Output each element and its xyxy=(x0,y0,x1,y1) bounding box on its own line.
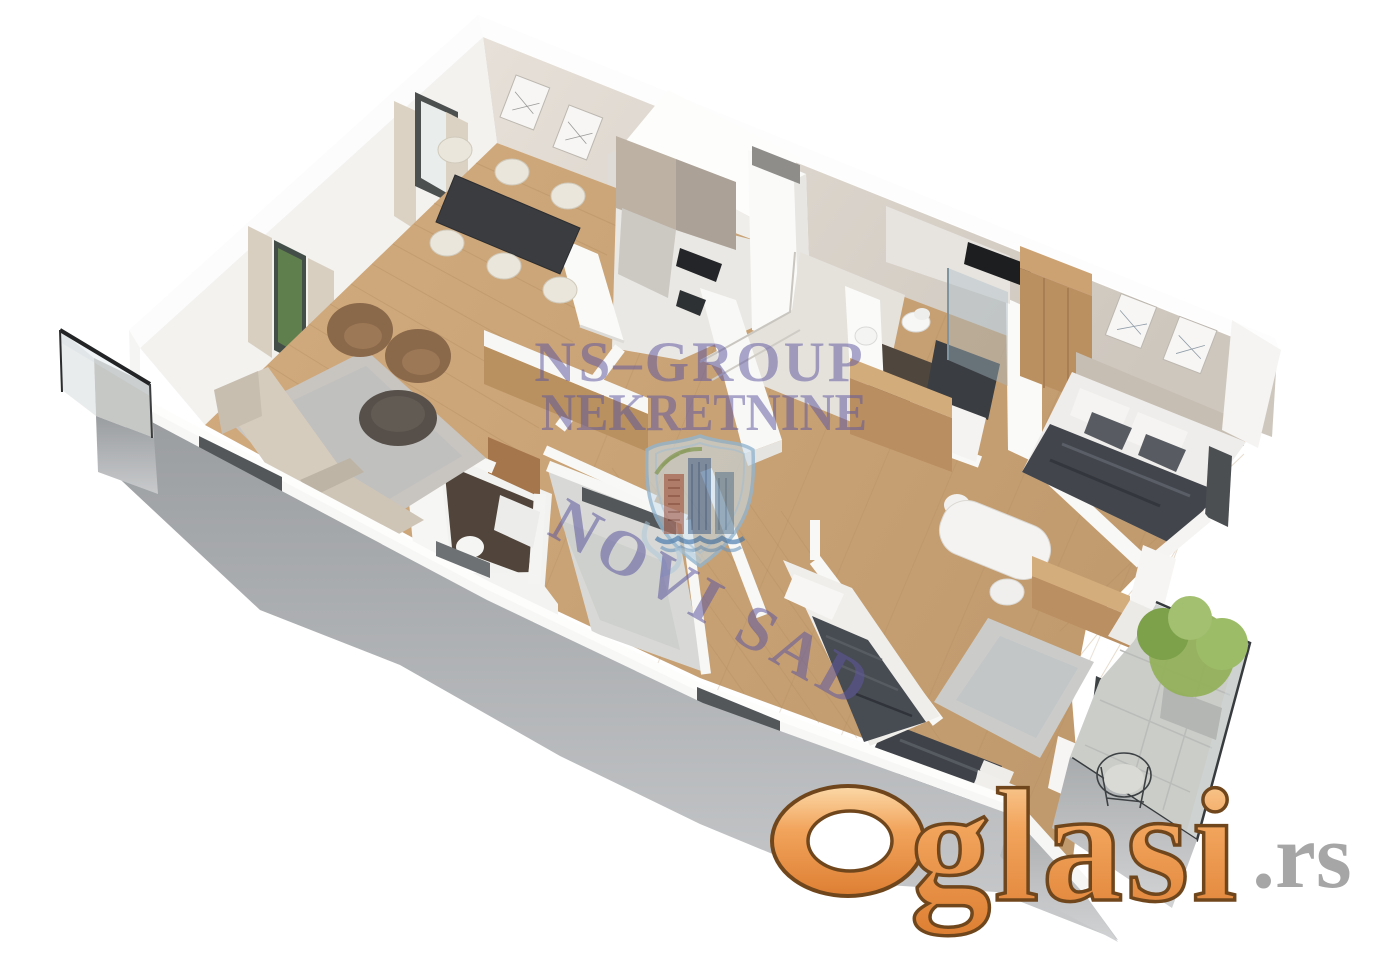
svg-text:glasi: glasi xyxy=(910,757,1240,936)
svg-text:.rs: .rs xyxy=(1252,805,1352,907)
svg-text:NEKRETNINE: NEKRETNINE xyxy=(541,384,867,442)
